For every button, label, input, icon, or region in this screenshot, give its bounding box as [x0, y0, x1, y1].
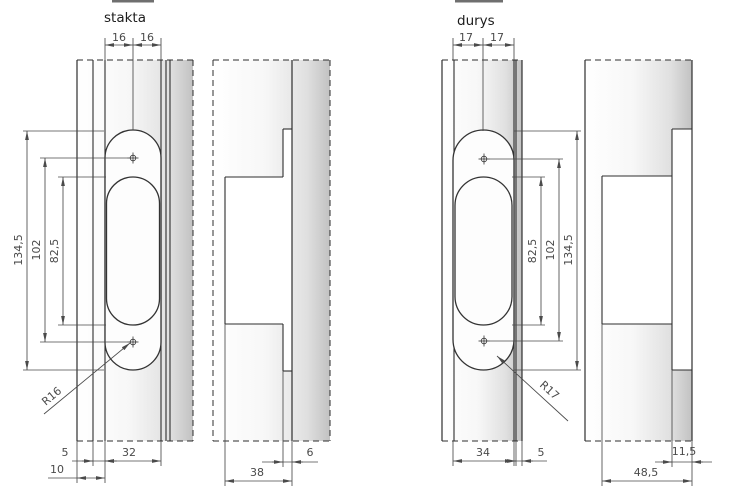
cropped-text-artifact [112, 0, 154, 3]
dim-frame-outer-height: 134,5 [12, 234, 25, 266]
dim-door-top-right: 17 [490, 31, 504, 44]
dim-frame-total-offset: 10 [50, 463, 64, 476]
frame-title-label: stakta [104, 10, 146, 26]
dim-door-pocket-depth: 48,5 [634, 466, 659, 479]
frame-slot-cut-top [283, 129, 292, 177]
door-slot-cut-area [672, 129, 692, 370]
dim-frame-inner-height: 82,5 [48, 239, 61, 264]
door-title-label: durys [457, 13, 495, 29]
drawing-page: stakta 16 16 134,5 102 82,5 R16 [0, 0, 740, 498]
dim-door-hole-spacing: 102 [544, 240, 557, 261]
dim-door-plate-width: 34 [476, 446, 490, 459]
cropped-text-artifact [455, 0, 503, 3]
dim-frame-edge-offset: 5 [62, 446, 69, 459]
dim-door-outer-height: 134,5 [562, 234, 575, 266]
door-faceplate-cutout [455, 177, 512, 325]
door-pocket-cut-area [602, 176, 672, 324]
door-assembly: durys 17 17 82,5 102 134,5 R17 [442, 13, 712, 486]
frame-slot-cut-bottom [283, 324, 292, 371]
dim-frame-radius: R16 [39, 384, 64, 408]
dim-door-inner-height: 82,5 [526, 239, 539, 264]
door-side-view [585, 60, 692, 441]
dim-frame-top-left: 16 [112, 31, 126, 44]
frame-front-view [77, 60, 193, 441]
door-front-view [442, 60, 522, 441]
dim-frame-slot-depth: 6 [307, 446, 314, 459]
dim-door-edge-offset: 5 [538, 446, 545, 459]
dim-frame-hole-spacing: 102 [30, 240, 43, 261]
dim-door-top-left: 17 [459, 31, 473, 44]
dim-door-radius: R17 [537, 378, 562, 402]
frame-faceplate-cutout [107, 177, 160, 325]
technical-drawing-canvas: stakta 16 16 134,5 102 82,5 R16 [0, 0, 740, 498]
dim-door-slot-depth: 11,5 [672, 445, 697, 458]
frame-side-view [213, 60, 330, 441]
frame-assembly: stakta 16 16 134,5 102 82,5 R16 [12, 10, 330, 486]
dim-frame-pocket-depth: 38 [250, 466, 264, 479]
dim-frame-top-right: 16 [140, 31, 154, 44]
frame-pocket-cut-area [225, 177, 292, 324]
dim-frame-plate-width: 32 [122, 446, 136, 459]
